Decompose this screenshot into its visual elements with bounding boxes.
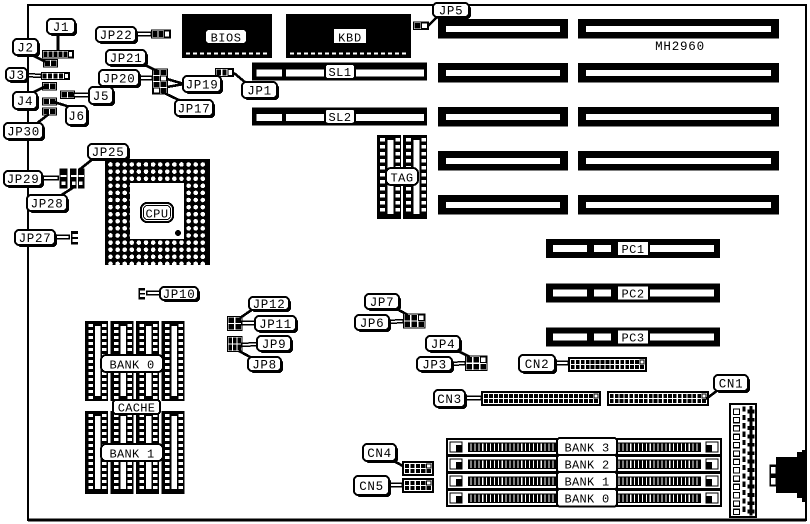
svg-text:PC2: PC2	[621, 288, 644, 302]
svg-text:JP28: JP28	[31, 198, 64, 212]
svg-text:MH2960: MH2960	[655, 40, 705, 54]
svg-text:JP20: JP20	[103, 73, 136, 87]
svg-text:TAG: TAG	[390, 172, 413, 186]
svg-text:JP19: JP19	[186, 79, 219, 93]
svg-text:BANK 1: BANK 1	[564, 476, 609, 490]
svg-text:PC1: PC1	[621, 243, 644, 257]
svg-text:JP9: JP9	[262, 338, 287, 352]
svg-text:SL2: SL2	[328, 111, 351, 125]
svg-text:JP30: JP30	[7, 126, 40, 140]
svg-text:JP25: JP25	[92, 146, 125, 160]
svg-text:J5: J5	[93, 90, 109, 104]
svg-text:JP8: JP8	[252, 359, 277, 373]
svg-text:CPU: CPU	[145, 208, 168, 222]
svg-text:J6: J6	[68, 110, 84, 124]
svg-text:J3: J3	[8, 69, 24, 83]
svg-text:JP29: JP29	[7, 173, 40, 187]
svg-text:JP10: JP10	[163, 288, 196, 302]
svg-text:BIOS: BIOS	[211, 32, 242, 46]
svg-text:JP4: JP4	[431, 338, 456, 352]
svg-text:SL1: SL1	[328, 66, 351, 80]
svg-text:J2: J2	[17, 42, 33, 56]
svg-text:JP1: JP1	[247, 85, 272, 99]
svg-text:JP3: JP3	[422, 359, 447, 373]
svg-text:CN2: CN2	[525, 358, 550, 372]
svg-text:BANK 0: BANK 0	[564, 493, 609, 507]
svg-text:PC3: PC3	[621, 332, 644, 346]
svg-text:CN3: CN3	[437, 393, 462, 407]
svg-text:JP11: JP11	[259, 318, 292, 332]
svg-text:CN5: CN5	[359, 480, 384, 494]
svg-text:J1: J1	[53, 21, 69, 35]
svg-text:JP7: JP7	[370, 296, 395, 310]
svg-text:JP22: JP22	[100, 29, 133, 43]
svg-text:KBD: KBD	[338, 32, 362, 46]
svg-text:JP6: JP6	[360, 317, 385, 331]
svg-text:CN4: CN4	[367, 447, 392, 461]
svg-text:BANK 1: BANK 1	[109, 448, 154, 462]
svg-text:BANK 0: BANK 0	[109, 359, 154, 373]
svg-text:JP12: JP12	[253, 298, 286, 312]
svg-text:JP17: JP17	[178, 103, 211, 117]
svg-text:JP27: JP27	[19, 232, 52, 246]
svg-text:J4: J4	[17, 95, 33, 109]
svg-text:CN1: CN1	[719, 378, 744, 392]
svg-text:BANK 2: BANK 2	[564, 459, 609, 473]
svg-text:JP21: JP21	[110, 52, 143, 66]
svg-text:JP5: JP5	[439, 5, 464, 19]
svg-text:CACHE: CACHE	[118, 402, 156, 416]
svg-text:BANK 3: BANK 3	[564, 442, 609, 456]
